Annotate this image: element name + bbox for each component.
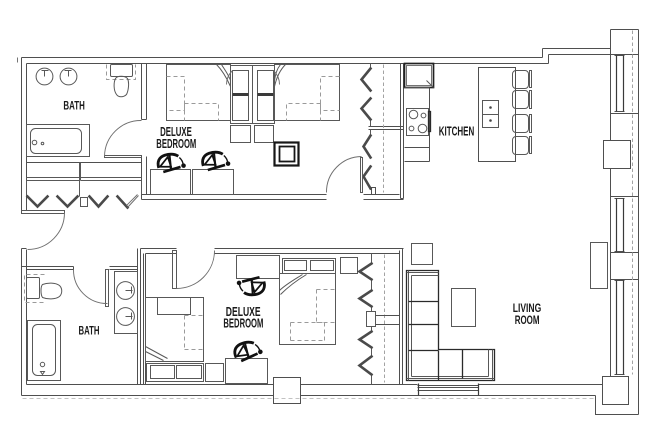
svg-text:ROOM: ROOM — [515, 313, 540, 327]
svg-text:BEDROOM: BEDROOM — [156, 137, 196, 151]
svg-text:BATH: BATH — [79, 324, 100, 338]
svg-text:BEDROOM: BEDROOM — [223, 316, 263, 330]
svg-text:BATH: BATH — [63, 99, 84, 113]
svg-text:KITCHEN: KITCHEN — [439, 123, 475, 138]
